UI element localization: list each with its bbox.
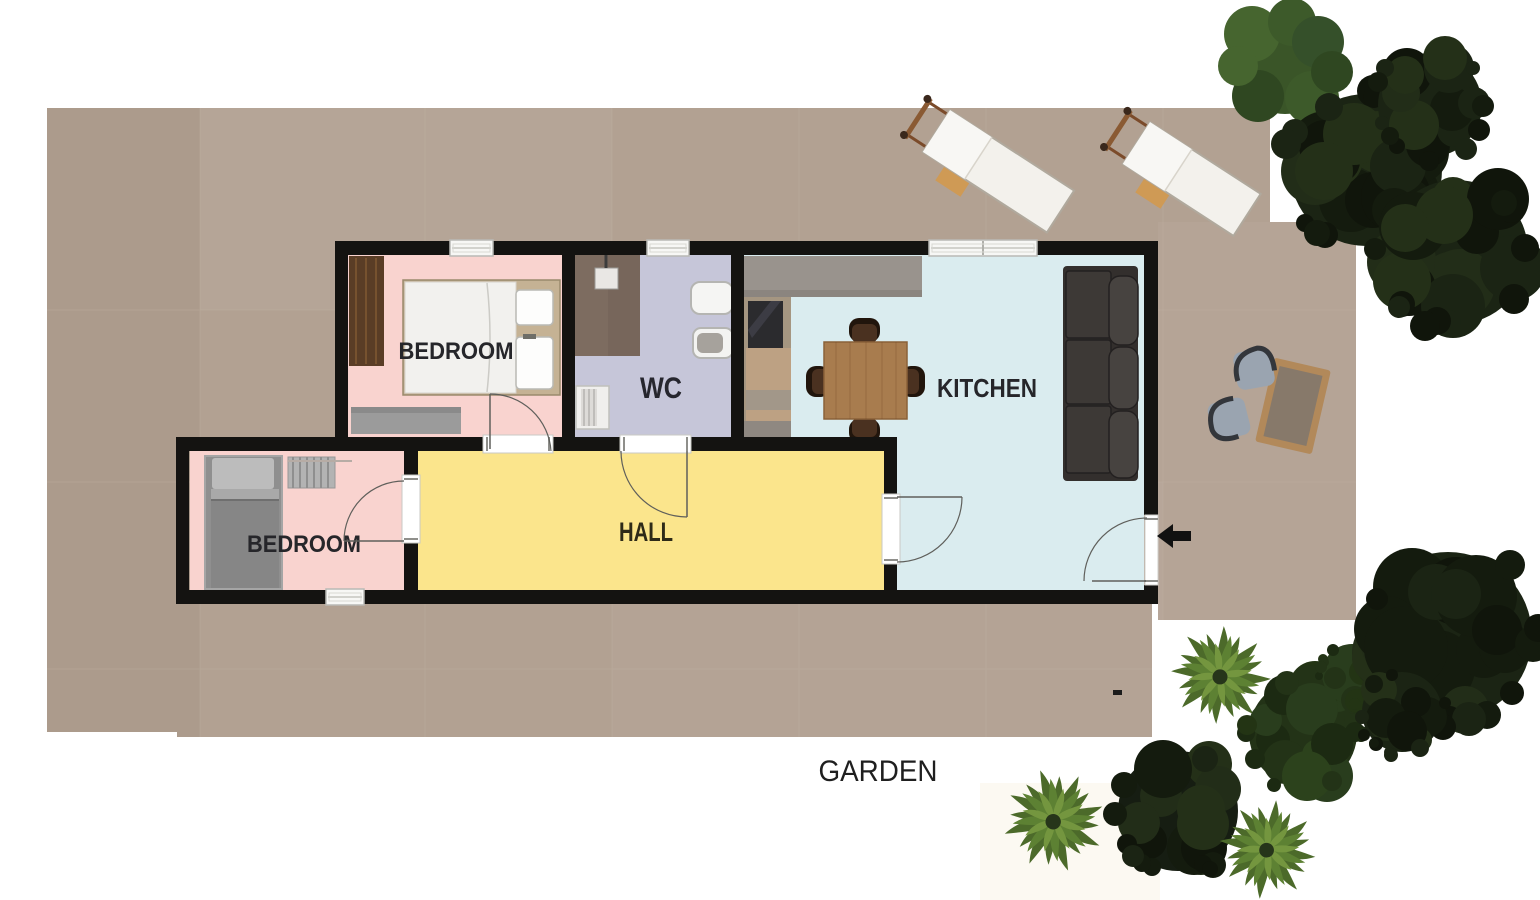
svg-text:BEDROOM: BEDROOM [399, 338, 514, 365]
svg-text:KITCHEN: KITCHEN [937, 373, 1037, 403]
svg-text:WC: WC [640, 372, 682, 405]
svg-text:GARDEN: GARDEN [819, 755, 938, 788]
svg-text:HALL: HALL [619, 517, 673, 547]
